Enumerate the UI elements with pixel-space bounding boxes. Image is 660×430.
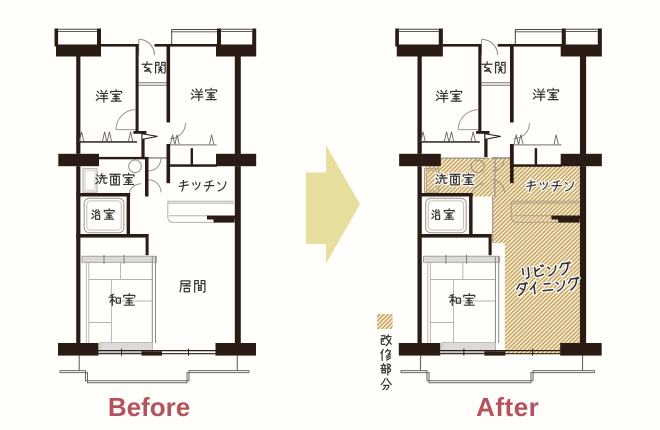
svg-text:After: After bbox=[476, 392, 539, 422]
svg-text:Before: Before bbox=[108, 392, 190, 422]
